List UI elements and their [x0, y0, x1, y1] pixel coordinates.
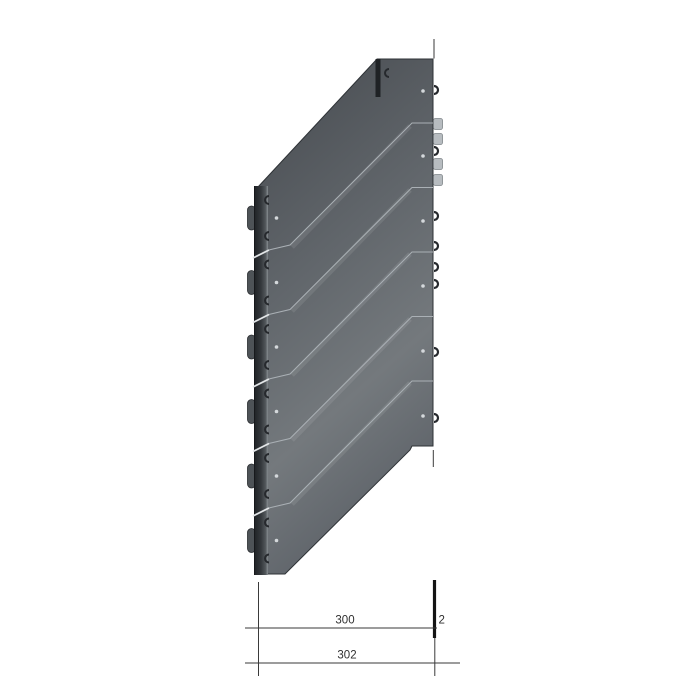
fastener-hole — [421, 154, 425, 158]
clip-hook — [434, 280, 438, 288]
clip-hook — [434, 242, 438, 250]
fastener-hole — [275, 539, 279, 543]
right-edge-clips — [434, 86, 443, 422]
drawing-canvas: 300 2 302 — [0, 0, 700, 700]
edge-thickness-mark — [433, 580, 436, 638]
clip-hook — [434, 147, 438, 155]
dimension-2: 2 — [439, 615, 445, 627]
dimension-300: 300 — [245, 615, 437, 629]
clip-hook — [434, 414, 438, 422]
clip-hook — [434, 348, 438, 356]
clip-tab — [434, 159, 443, 170]
clip-hook — [434, 86, 438, 94]
top-flange-bar — [376, 59, 381, 97]
dimension-label-2: 2 — [439, 615, 445, 627]
fastener-hole — [275, 345, 279, 349]
fastener-hole — [421, 414, 425, 418]
dimension-label-302: 302 — [337, 650, 356, 662]
left-flange-strip — [248, 186, 270, 575]
clip-tab — [434, 119, 443, 130]
fastener-hole — [421, 89, 425, 93]
dimension-302: 302 — [245, 650, 460, 664]
fastener-hole — [421, 219, 425, 223]
fastener-hole — [275, 410, 279, 414]
stair-stringer-elevation-drawing: 300 2 302 — [0, 0, 700, 700]
fastener-hole — [275, 281, 279, 285]
fastener-hole — [421, 349, 425, 353]
stringer-plate — [258, 59, 433, 574]
clip-hook — [434, 212, 438, 220]
fastener-hole — [421, 284, 425, 288]
clip-hook — [434, 263, 438, 271]
fastener-hole — [275, 474, 279, 478]
dimension-label-300: 300 — [335, 615, 354, 627]
clip-tab — [434, 134, 443, 145]
fastener-hole — [275, 216, 279, 220]
clip-tab — [434, 175, 443, 186]
